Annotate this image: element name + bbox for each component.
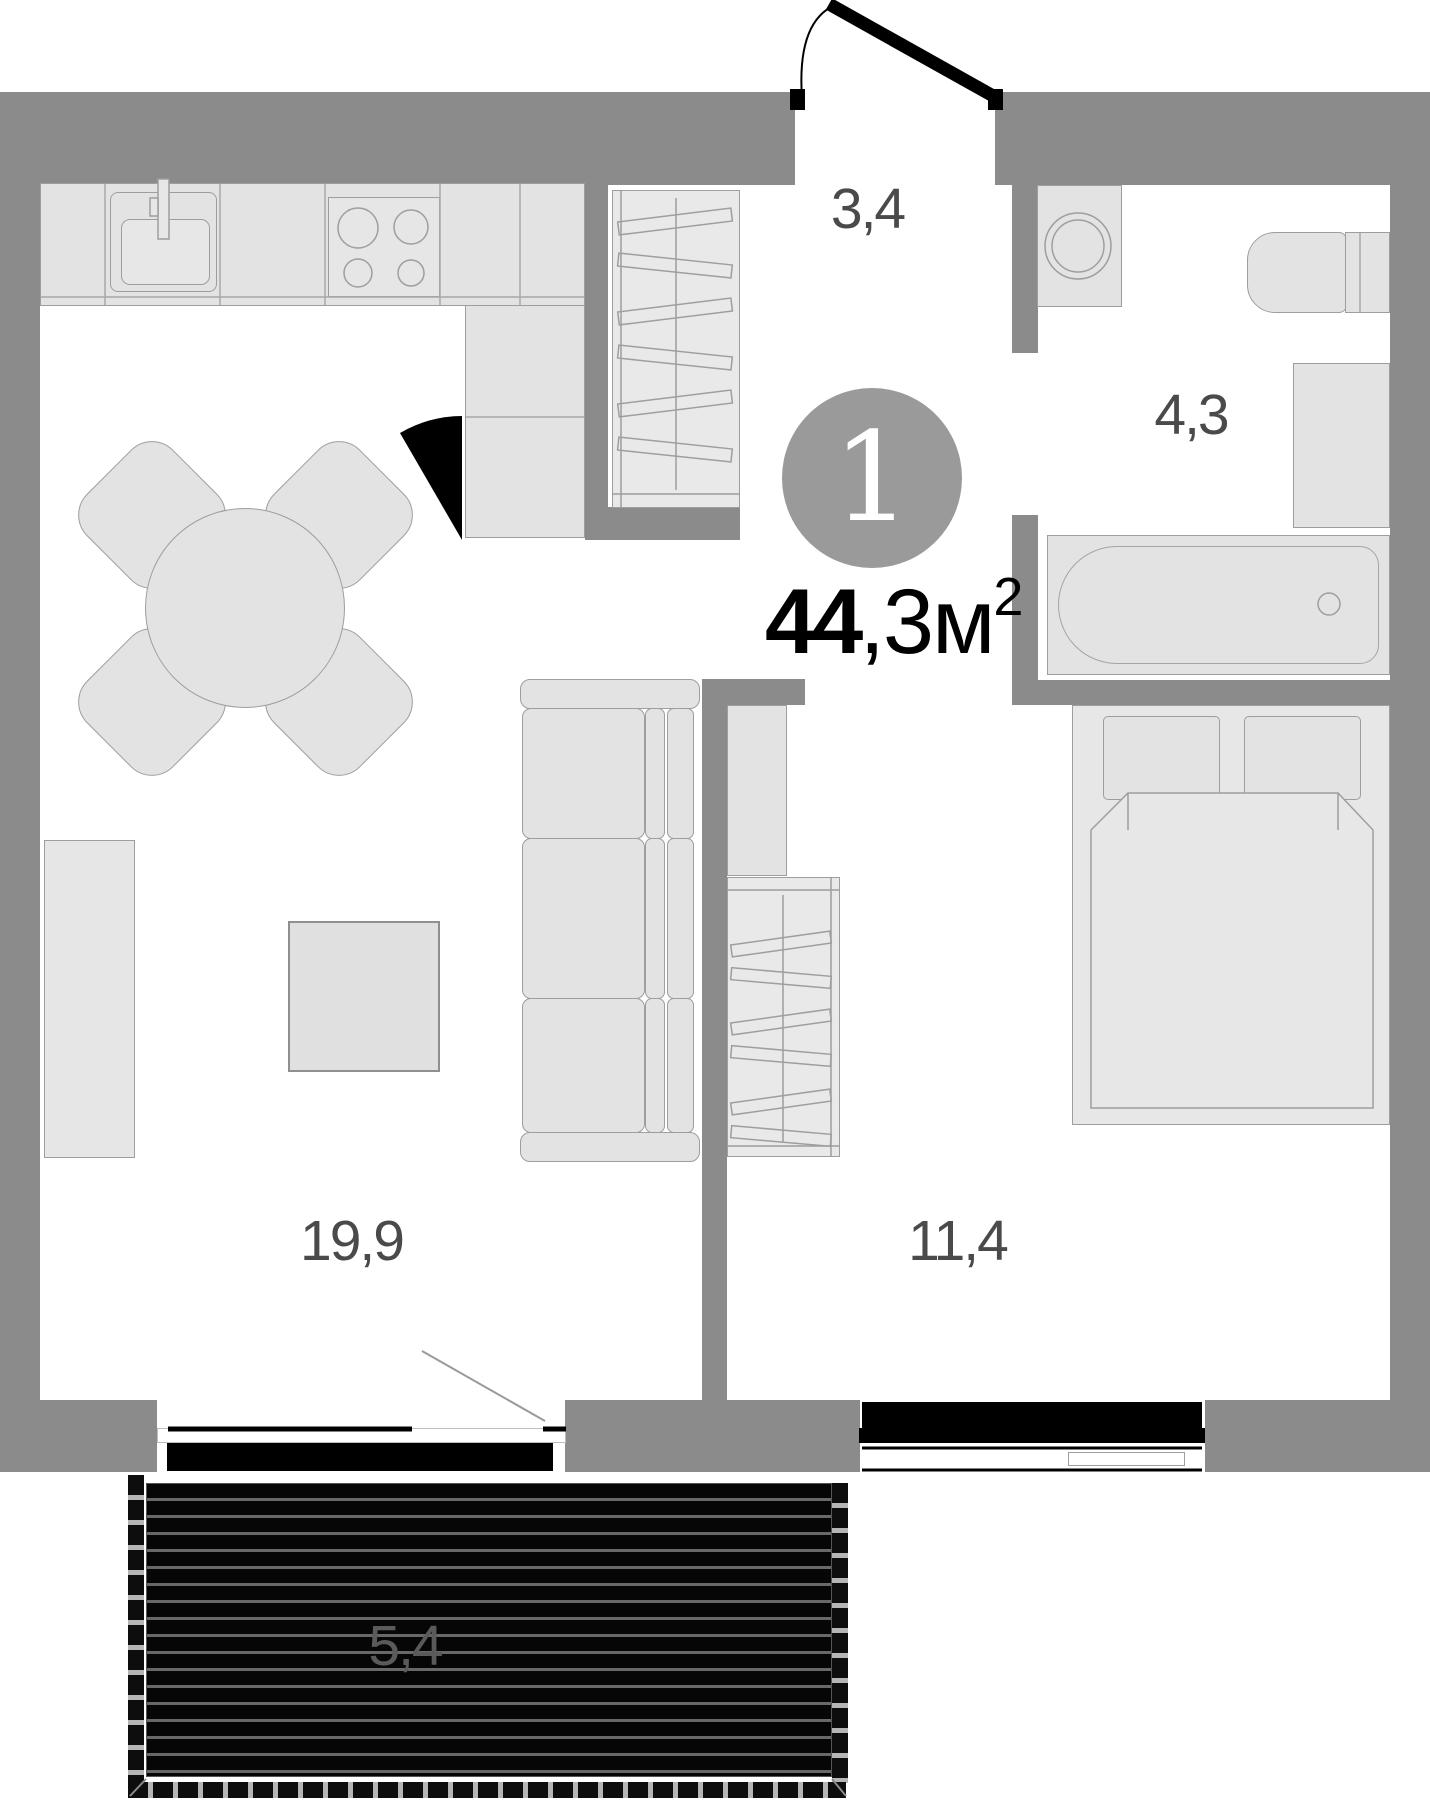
coffee-table [288, 921, 440, 1072]
tv-stand [44, 840, 135, 1158]
rooms-count-badge: 1 [782, 388, 962, 568]
wall-kitchen-hall [585, 185, 608, 540]
bedroom-closet [727, 877, 840, 1157]
sofa-back-2a [645, 838, 665, 999]
toilet-tank [1345, 232, 1390, 313]
stove [328, 197, 440, 297]
room-label-hallway: 3,4 [790, 176, 945, 242]
total-area-sup: 2 [993, 567, 1021, 627]
living-window-sill [157, 1428, 566, 1443]
sofa-seat-2 [522, 838, 645, 999]
room-label-bathroom: 4,3 [1111, 382, 1271, 448]
kitchen-counter-side [465, 305, 585, 538]
wall-bath-left-upper [1012, 185, 1038, 353]
toilet-bowl [1247, 232, 1347, 313]
wall-hall-bottom [585, 507, 740, 540]
wall-bottom-mid [565, 1400, 860, 1472]
sofa-back-1b [667, 708, 694, 839]
sofa-seat-1 [522, 708, 645, 839]
sofa-back-2b [667, 838, 694, 999]
wall-top-right [995, 92, 1430, 185]
bedroom-window-handle [1068, 1452, 1185, 1466]
balcony-rail-right [832, 1483, 848, 1783]
sofa-armrest-top [520, 679, 700, 709]
sofa-armrest-bottom [520, 1132, 700, 1162]
sink-basin [121, 219, 210, 285]
balcony-door-swing-icon [422, 1351, 545, 1421]
room-label-living-kitchen: 19,9 [259, 1208, 444, 1274]
sofa-back-3a [645, 998, 665, 1133]
wall-top-left [0, 92, 795, 185]
bedroom-window-upper [862, 1402, 1202, 1428]
vanity-cabinet [1293, 363, 1390, 528]
total-area-unit: м [932, 571, 993, 673]
pillow-right [1244, 716, 1361, 800]
room-label-bedroom: 11,4 [865, 1208, 1050, 1274]
door-jamb-left [790, 89, 805, 110]
dining-table [145, 508, 345, 708]
wall-bottom-right [1205, 1400, 1430, 1472]
room-label-balcony: 5,4 [320, 1613, 490, 1679]
washing-machine [1037, 185, 1122, 307]
rooms-count-value: 1 [833, 406, 912, 550]
floor-plan: 1 44,3м2 3,4 4,3 19,9 11,4 5,4 [0, 0, 1430, 1800]
balcony-rail-bottom [128, 1782, 846, 1798]
bedside-cabinet [727, 705, 787, 876]
wall-bath-bedroom [1012, 680, 1390, 705]
wall-bottom-left [0, 1400, 157, 1472]
wall-left [0, 185, 40, 1400]
total-area-integer: 44 [765, 571, 859, 673]
bathtub-inner [1058, 546, 1379, 664]
wall-living-bedroom [702, 679, 727, 1400]
sofa-seat-3 [522, 998, 645, 1133]
entrance-door-icon [801, 4, 995, 98]
bedroom-window-lower [859, 1428, 1205, 1443]
balcony-rail-left [128, 1475, 144, 1798]
total-area-fraction: ,3 [859, 571, 932, 673]
living-window-frame [167, 1443, 553, 1471]
hall-wardrobe [612, 190, 740, 508]
pillow-left [1103, 716, 1220, 800]
wall-right [1390, 185, 1430, 1472]
total-area: 44,3м2 [765, 570, 1021, 675]
door-jamb-right [988, 89, 1003, 110]
sofa-back-3b [667, 998, 694, 1133]
sofa-back-1a [645, 708, 665, 839]
